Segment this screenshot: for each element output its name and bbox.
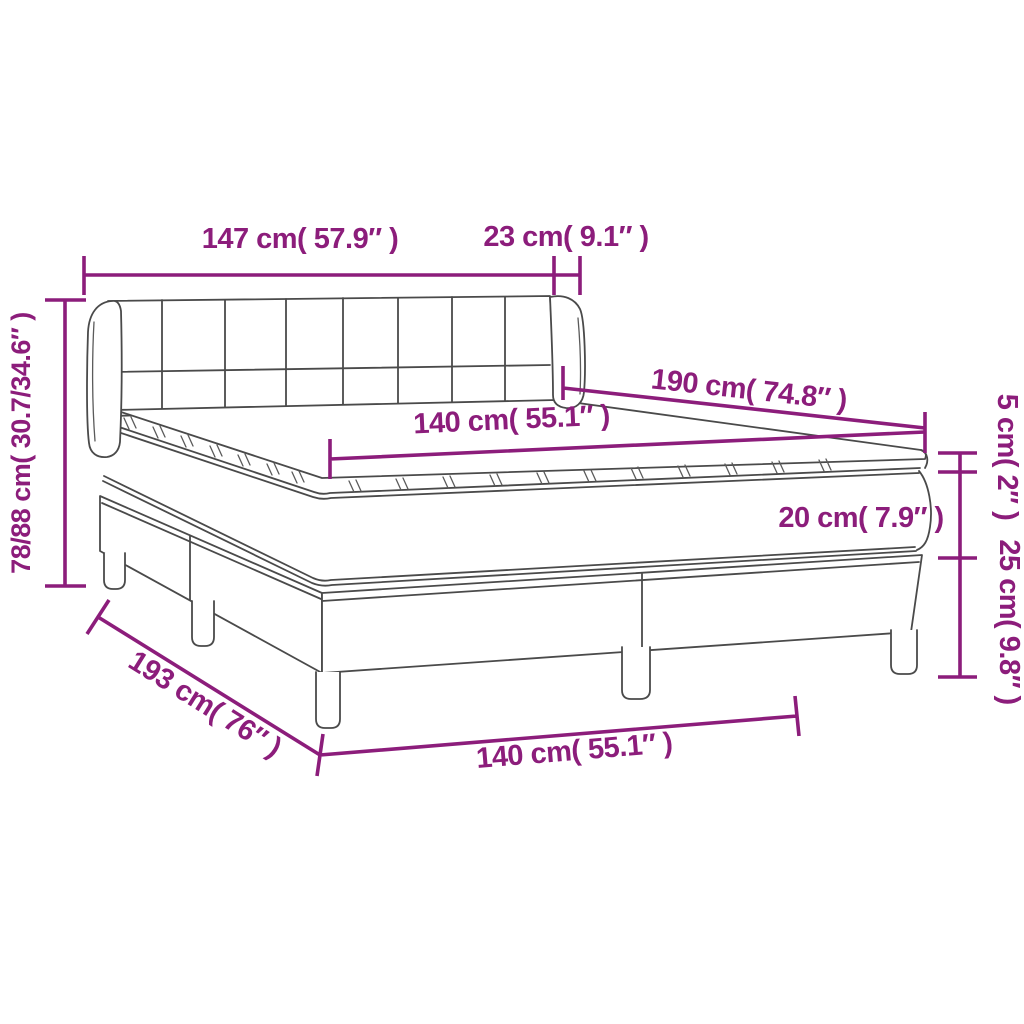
bed-leg <box>891 630 917 674</box>
label-base-height: 25 cm( 9.8″ ) <box>993 539 1024 704</box>
bed-leg <box>316 672 340 728</box>
label-total-height: 78/88 cm( 30.7/34.6″ ) <box>6 312 36 574</box>
bed-dimension-diagram: 147 cm( 57.9″ ) 23 cm( 9.1″ ) 78/88 cm( … <box>0 0 1024 1024</box>
headboard-face <box>108 296 556 416</box>
dim-line <box>45 300 86 586</box>
dim-total-height: 78/88 cm( 30.7/34.6″ ) <box>6 300 86 586</box>
bed-leg <box>192 601 214 646</box>
headboard-panel <box>108 296 556 416</box>
dim-line <box>84 256 580 295</box>
dim-base-width: 140 cm( 55.1″ ) <box>317 696 799 776</box>
bed-leg <box>622 647 650 699</box>
label-base-width: 140 cm( 55.1″ ) <box>475 727 674 775</box>
label-topper-thickness: 5 cm( 2″ ) <box>991 394 1023 521</box>
dim-line <box>938 453 977 677</box>
label-base-length: 193 cm( 76″ ) <box>123 645 287 764</box>
diagram-canvas: 147 cm( 57.9″ ) 23 cm( 9.1″ ) 78/88 cm( … <box>0 0 1024 1024</box>
label-side-bolster-depth: 23 cm( 9.1″ ) <box>483 221 648 253</box>
label-headboard-width: 147 cm( 57.9″ ) <box>202 223 399 255</box>
bed-leg <box>104 553 125 589</box>
dim-headboard-width: 147 cm( 57.9″ ) 23 cm( 9.1″ ) <box>84 221 649 295</box>
label-mattress-thickness: 20 cm( 7.9″ ) <box>778 502 943 534</box>
